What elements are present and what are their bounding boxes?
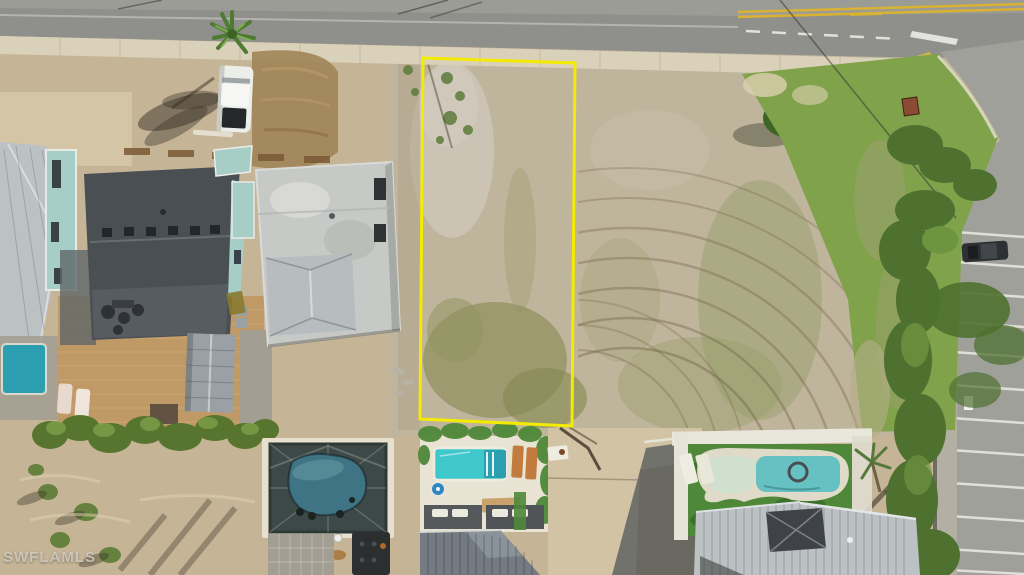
roof-courtyard [766,508,826,552]
shed [185,333,236,413]
watermark: SWFLAMLS [3,549,96,566]
rect-pool [434,448,506,480]
house-dark-roof [84,146,252,340]
small-pool [2,344,46,394]
spa-equipment [352,532,390,575]
metal-hip-roof [266,254,356,336]
aerial-scene [0,0,1024,575]
freeform-pool [697,448,849,502]
parked-car [961,240,1008,262]
utility-box [902,97,919,116]
pickup-truck [216,65,253,133]
screened-pool-house [262,438,394,575]
white-mat [547,445,568,461]
aerial-photograph: SWFLAMLS [0,0,1024,575]
